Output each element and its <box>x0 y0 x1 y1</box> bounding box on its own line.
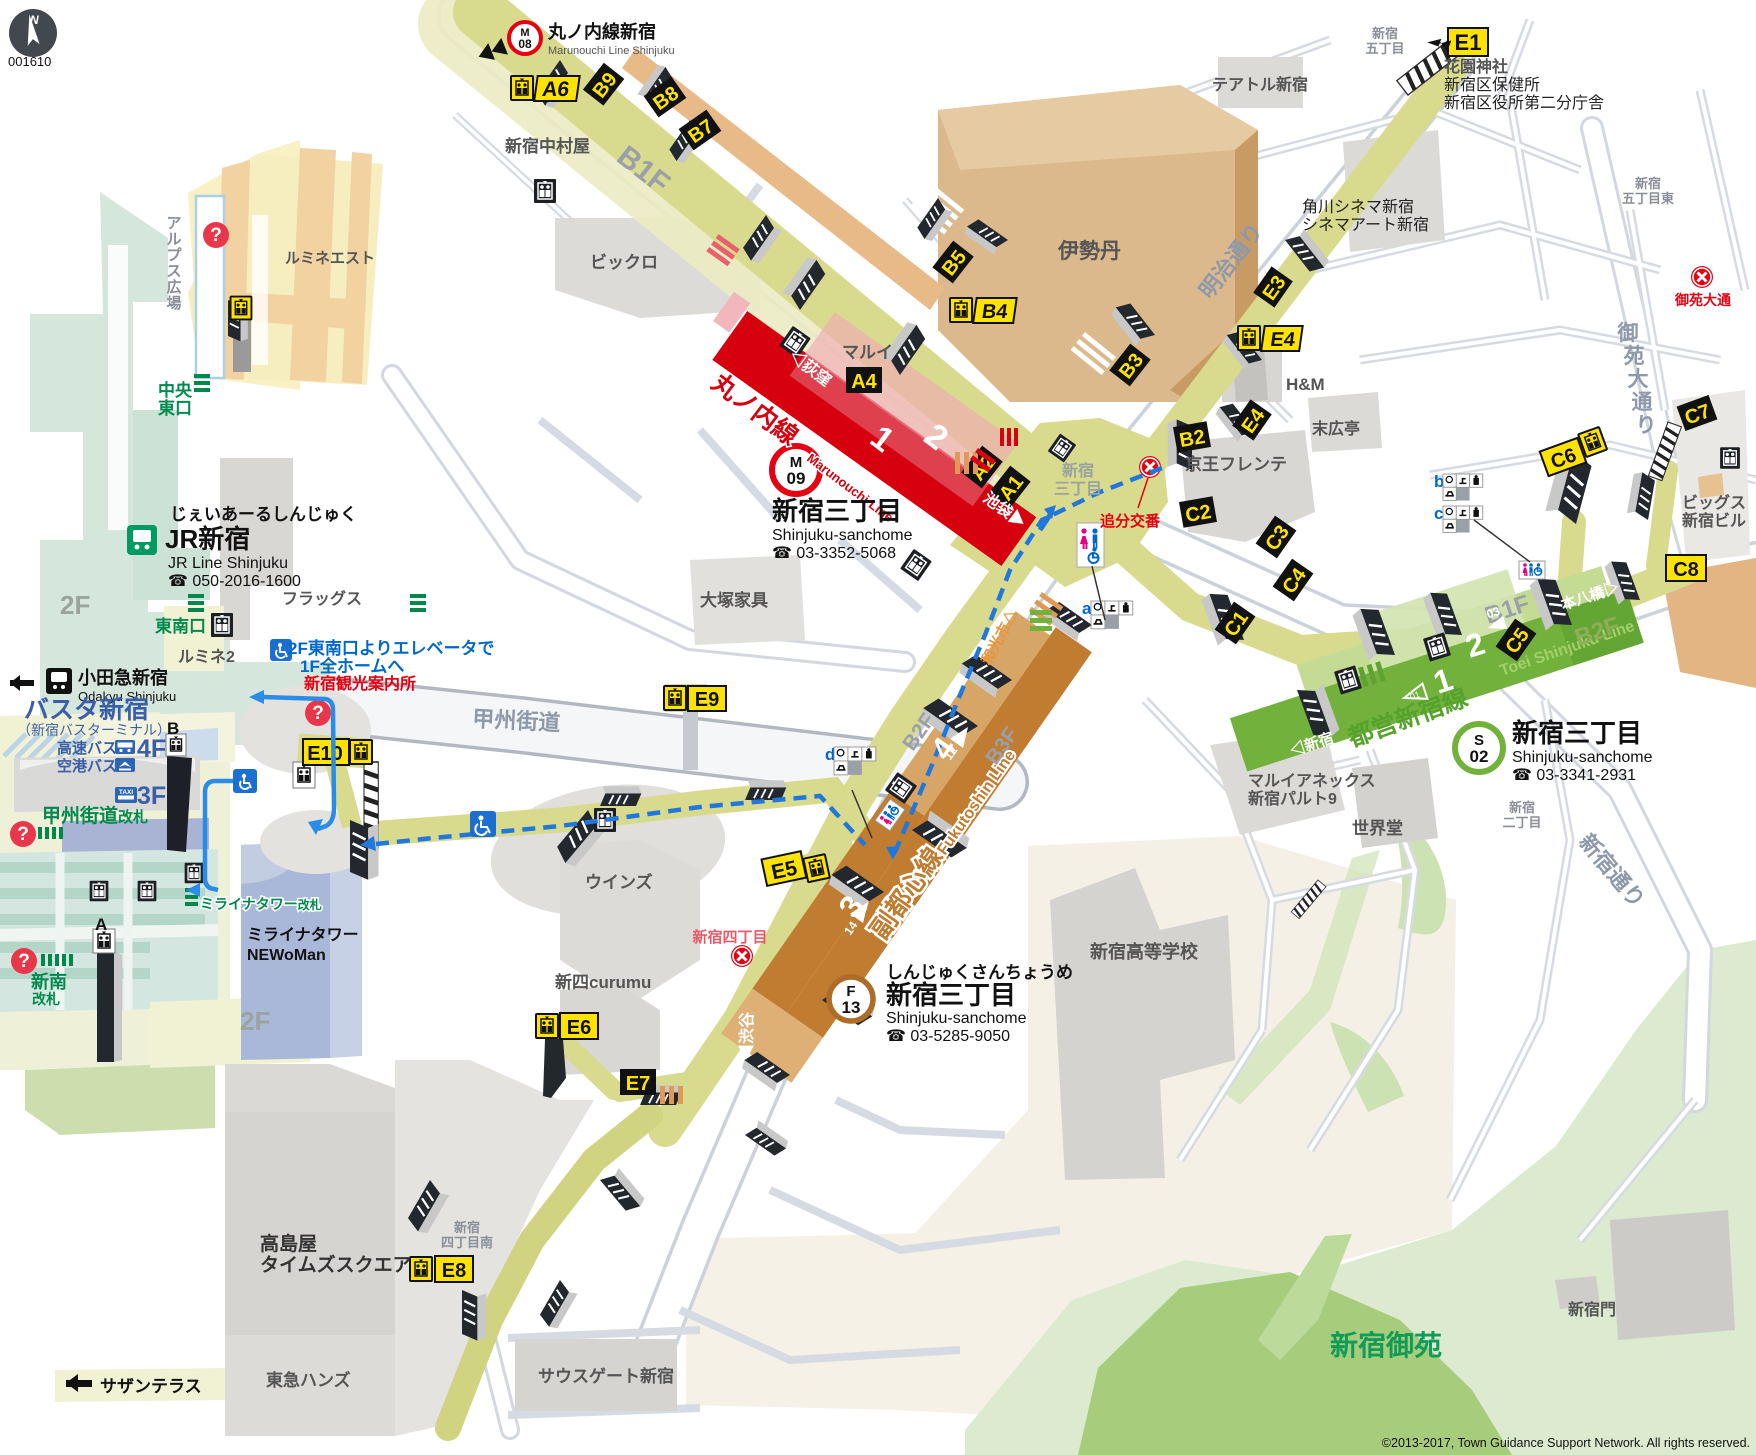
svg-text:四丁目南: 四丁目南 <box>441 1235 493 1250</box>
svg-text:09: 09 <box>787 469 806 488</box>
svg-text:東口: 東口 <box>158 398 192 418</box>
svg-text:A4: A4 <box>851 371 877 393</box>
svg-text:2F東南口よりエレベータで: 2F東南口よりエレベータで <box>288 638 495 658</box>
svg-text:フラッグス: フラッグス <box>282 589 362 608</box>
svg-text:001610: 001610 <box>8 54 51 69</box>
svg-text:N: N <box>30 13 39 27</box>
svg-text:世界堂: 世界堂 <box>1352 818 1403 838</box>
svg-text:新宿中村屋: 新宿中村屋 <box>505 136 590 156</box>
svg-text:甲州街道: 甲州街道 <box>472 706 561 736</box>
svg-text:サウスゲート新宿: サウスゲート新宿 <box>538 1366 674 1386</box>
svg-text:新宿観光案内所: 新宿観光案内所 <box>304 674 416 693</box>
svg-text:B2: B2 <box>1178 426 1207 452</box>
svg-text:Shinjuku-sanchome: Shinjuku-sanchome <box>1512 749 1653 766</box>
svg-text:◀渋谷: ◀渋谷 <box>737 1011 756 1060</box>
svg-text:マルイ: マルイ <box>842 343 893 362</box>
svg-text:ビックロ: ビックロ <box>590 253 658 272</box>
svg-text:a: a <box>1082 599 1092 618</box>
svg-text:H&M: H&M <box>1286 375 1325 394</box>
svg-text:改札: 改札 <box>32 991 60 1007</box>
svg-text:02: 02 <box>1470 747 1489 766</box>
svg-text:小田急新宿: 小田急新宿 <box>78 667 168 688</box>
svg-text:NEWoMan: NEWoMan <box>247 947 326 964</box>
svg-text:B4: B4 <box>980 301 1009 323</box>
svg-text:3F: 3F <box>137 782 166 810</box>
svg-text:新宿門: 新宿門 <box>1568 1300 1616 1319</box>
svg-text:新宿: 新宿 <box>1062 461 1094 480</box>
svg-text:京王フレンテ: 京王フレンテ <box>1185 454 1287 474</box>
svg-text:新宿パルト9: 新宿パルト9 <box>1248 789 1337 808</box>
svg-text:五丁目東: 五丁目東 <box>1622 191 1674 206</box>
svg-text:新宿区役所第二分庁舎: 新宿区役所第二分庁舎 <box>1444 94 1604 112</box>
svg-text:新宿三丁目: 新宿三丁目 <box>886 980 1016 1010</box>
svg-text:バスタ新宿: バスタ新宿 <box>24 695 149 724</box>
svg-text:新宿: 新宿 <box>1372 26 1398 41</box>
svg-text:E10: E10 <box>307 743 343 765</box>
svg-text:08: 08 <box>518 37 532 51</box>
svg-text:新宿区保健所: 新宿区保健所 <box>1444 76 1540 94</box>
svg-text:E4: E4 <box>1269 329 1297 351</box>
svg-text:高速バス: 高速バス <box>57 739 117 757</box>
svg-text:☎ 03-3341-2931: ☎ 03-3341-2931 <box>1512 767 1636 784</box>
svg-text:ミライナタワー改札: ミライナタワー改札 <box>200 896 322 912</box>
svg-text:Shinjuku-sanchome: Shinjuku-sanchome <box>886 1010 1027 1027</box>
svg-text:丸ノ内線新宿: 丸ノ内線新宿 <box>547 21 656 42</box>
svg-text:空港バス: 空港バス <box>57 757 117 775</box>
svg-text:新宿三丁目: 新宿三丁目 <box>772 496 902 526</box>
svg-text:c: c <box>1434 504 1443 523</box>
svg-text:E8: E8 <box>442 1260 466 1282</box>
svg-text:花園神社: 花園神社 <box>1444 57 1508 76</box>
svg-text:大塚家具: 大塚家具 <box>700 590 768 610</box>
svg-text:伊勢丹: 伊勢丹 <box>1057 239 1121 263</box>
svg-text:新南: 新南 <box>31 971 67 992</box>
svg-text:2F: 2F <box>240 1006 270 1036</box>
svg-text:E9: E9 <box>695 689 719 711</box>
svg-text:追分交番: 追分交番 <box>1100 512 1161 530</box>
svg-text:中央: 中央 <box>158 380 193 400</box>
svg-text:新宿: 新宿 <box>454 1220 480 1235</box>
svg-text:☎ 050-2016-1600: ☎ 050-2016-1600 <box>168 573 301 590</box>
svg-text:A6: A6 <box>541 78 571 101</box>
svg-text:ビッグス: ビッグス <box>1682 493 1746 512</box>
svg-text:A: A <box>95 915 107 934</box>
svg-text:二丁目: 二丁目 <box>1502 815 1541 830</box>
svg-text:2F: 2F <box>60 590 90 620</box>
svg-text:新宿: 新宿 <box>1635 176 1661 191</box>
svg-text:タイムズスクエア: タイムズスクエア <box>260 1253 412 1276</box>
svg-text:新宿: 新宿 <box>1509 800 1535 815</box>
svg-text:TAXI: TAXI <box>119 789 134 796</box>
svg-text:サザンテラス: サザンテラス <box>100 1377 202 1396</box>
svg-text:ミライナタワー: ミライナタワー <box>247 926 359 944</box>
svg-text:C2: C2 <box>1184 501 1213 527</box>
svg-text:ルミネ2: ルミネ2 <box>178 648 235 666</box>
svg-text:東急ハンズ: 東急ハンズ <box>266 1370 351 1390</box>
svg-text:五丁目: 五丁目 <box>1365 41 1404 56</box>
svg-text:ウインズ: ウインズ <box>585 872 653 892</box>
svg-text:B: B <box>167 719 179 738</box>
svg-text:☎ 03-3352-5068: ☎ 03-3352-5068 <box>772 545 896 562</box>
svg-text:ルミネエスト: ルミネエスト <box>285 250 375 267</box>
svg-text:E7: E7 <box>626 1073 650 1095</box>
svg-text:新宿四丁目: 新宿四丁目 <box>692 928 767 946</box>
svg-text:新宿高等学校: 新宿高等学校 <box>1090 941 1199 962</box>
svg-text:角川シネマ新宿: 角川シネマ新宿 <box>1302 198 1414 216</box>
svg-text:☎ 03-5285-9050: ☎ 03-5285-9050 <box>886 1028 1010 1045</box>
svg-text:新宿三丁目: 新宿三丁目 <box>1512 718 1642 748</box>
svg-text:御苑大通: 御苑大通 <box>1674 292 1731 308</box>
svg-text:三丁目: 三丁目 <box>1054 480 1102 498</box>
svg-text:13: 13 <box>842 998 861 1017</box>
svg-text:テアトル新宿: テアトル新宿 <box>1212 75 1308 94</box>
svg-text:アルプス広場: アルプス広場 <box>166 215 182 312</box>
svg-text:マルイアネックス: マルイアネックス <box>1248 772 1376 790</box>
svg-text:Marunouchi Line Shinjuku: Marunouchi Line Shinjuku <box>548 45 675 57</box>
svg-text:©2013-2017, Town Guidance Supp: ©2013-2017, Town Guidance Support Networ… <box>1382 1436 1750 1450</box>
svg-text:新四curumu: 新四curumu <box>555 972 651 992</box>
svg-text:東南口: 東南口 <box>155 616 206 636</box>
svg-text:高島屋: 高島屋 <box>260 1232 317 1255</box>
svg-text:末広亭: 末広亭 <box>1312 419 1360 438</box>
svg-text:C8: C8 <box>1673 559 1699 581</box>
svg-text:新宿ビル: 新宿ビル <box>1682 511 1746 530</box>
svg-text:新宿御苑: 新宿御苑 <box>1330 1329 1442 1361</box>
svg-text:E1: E1 <box>1455 30 1482 55</box>
svg-text:E6: E6 <box>567 1017 591 1039</box>
svg-text:1F全ホームへ: 1F全ホームへ <box>300 656 404 676</box>
svg-text:Shinjuku-sanchome: Shinjuku-sanchome <box>772 527 913 544</box>
svg-text:じぇいあーるしんじゅく: じぇいあーるしんじゅく <box>170 505 357 524</box>
svg-text:シネマアート新宿: シネマアート新宿 <box>1302 216 1429 234</box>
svg-text:4F: 4F <box>137 735 166 763</box>
svg-text:JR新宿: JR新宿 <box>165 524 250 554</box>
svg-text:JR Line Shinjuku: JR Line Shinjuku <box>168 555 288 572</box>
